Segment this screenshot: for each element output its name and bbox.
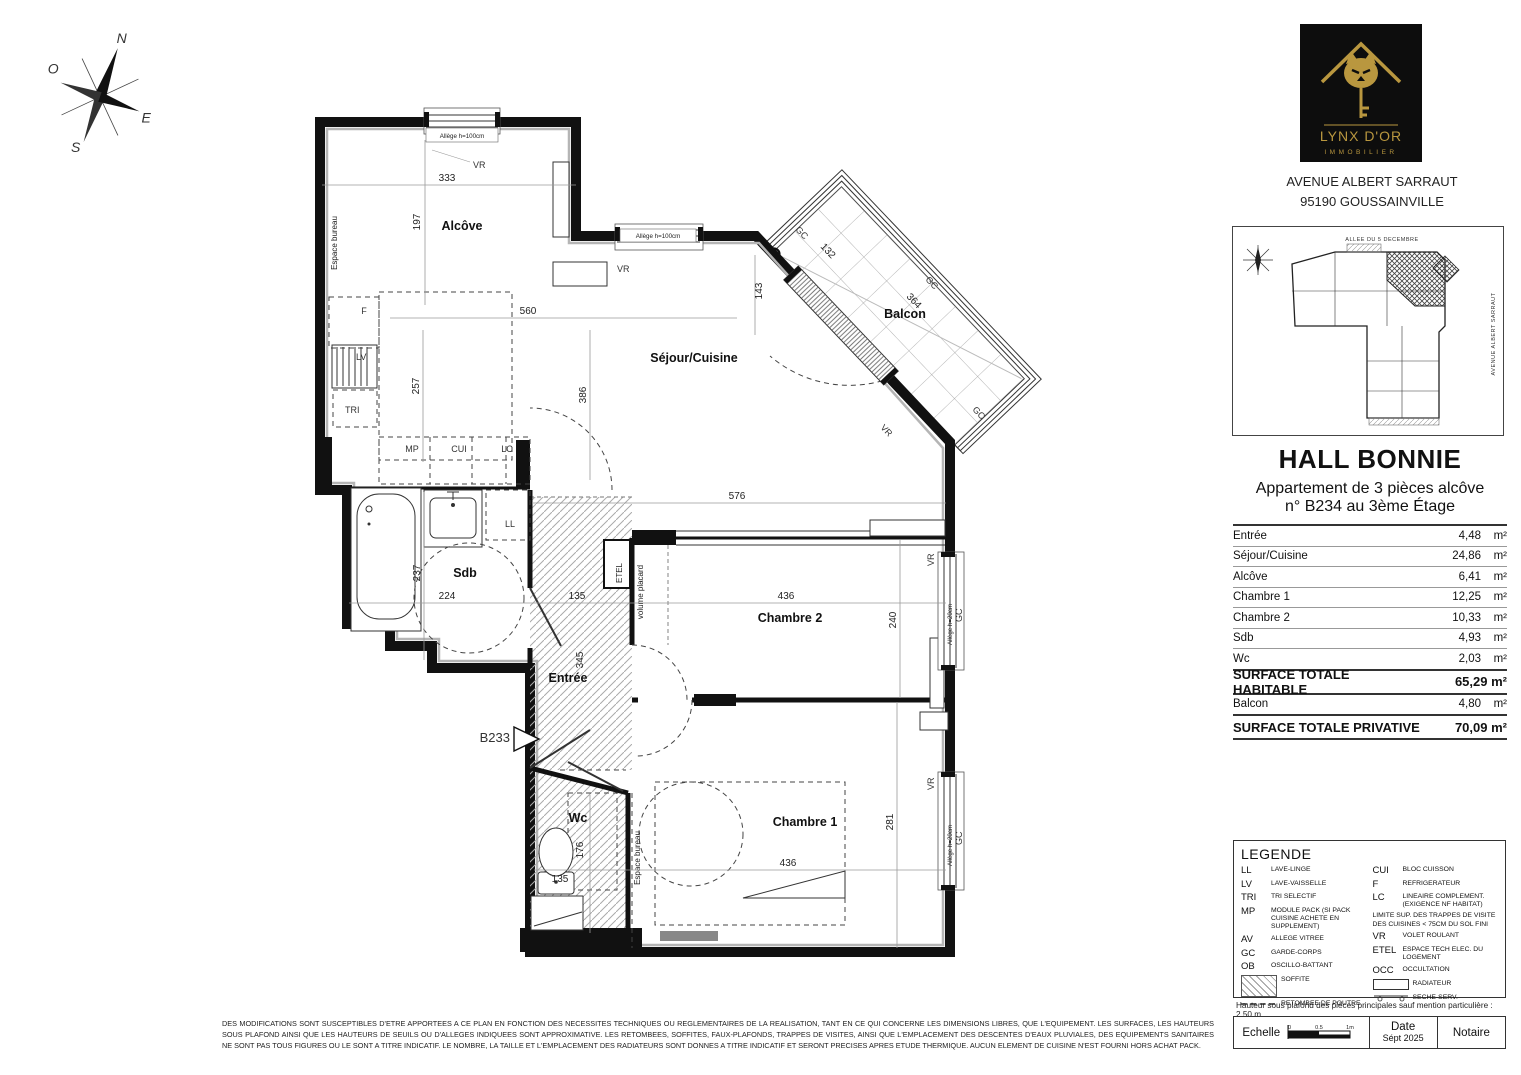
address-line1: AVENUE ALBERT SARRAUT — [1232, 172, 1512, 192]
room-chambre1: Chambre 1 — [773, 815, 838, 829]
page-title: HALL BONNIE — [1230, 444, 1510, 475]
dim-237: 237 — [412, 564, 423, 581]
row-label: Entrée — [1233, 530, 1435, 542]
legend-abbr: VR — [1373, 931, 1403, 942]
row-label: Chambre 2 — [1233, 612, 1435, 624]
legend-abbr: ETEL — [1373, 945, 1403, 963]
legend-text: ALLEGE VITREE — [1271, 934, 1324, 945]
table-row: Sdb 4,93 m² — [1233, 628, 1507, 649]
table-row: Alcôve 6,41 m² — [1233, 566, 1507, 587]
street-top-label: ALLEE DU 5 DECEMBRE — [1345, 237, 1418, 243]
key-icon — [1361, 88, 1369, 118]
row-label: Séjour/Cuisine — [1233, 550, 1435, 562]
vr-label: VR — [473, 160, 486, 170]
legend-abbr: GC — [1241, 948, 1271, 959]
dim-143: 143 — [754, 282, 765, 299]
room-chambre2: Chambre 2 — [758, 611, 823, 625]
dim-576: 576 — [729, 491, 746, 502]
dim-560: 560 — [520, 306, 537, 317]
row-label: SURFACE TOTALE PRIVATIVE — [1233, 720, 1427, 735]
row-unit: m² — [1481, 530, 1507, 542]
balcony-label: Balcon — [884, 307, 926, 321]
date-box: Date Sépt 2025 — [1369, 1016, 1437, 1049]
legend-note: LIMITE SUP. DES TRAPPES DE VISITE DES CU… — [1373, 912, 1499, 929]
dim-436-ch1: 436 — [780, 858, 797, 869]
floor-plan: N S E O Balcon GC 132 GC 364 GC EP — [0, 0, 1230, 1075]
legend-abbr: TRI — [1241, 892, 1271, 903]
title-block: Echelle 0 0.5 1m Date Sépt 2025 Notaire — [1233, 1016, 1506, 1049]
legend-abbr: LC — [1373, 892, 1403, 910]
scale-label: Echelle — [1242, 1027, 1280, 1039]
table-row: Chambre 1 12,25 m² — [1233, 587, 1507, 608]
total-privative-row: SURFACE TOTALE PRIVATIVE 70,09 m² — [1233, 714, 1507, 738]
agency-logo: LYNX D'OR IMMOBILIER — [1300, 24, 1422, 162]
row-label: Wc — [1233, 653, 1435, 665]
allege-label: Allège h=20cm — [947, 825, 954, 866]
address-line2: 95190 GOUSSAINVILLE — [1232, 192, 1512, 212]
date-label: Date — [1391, 1021, 1415, 1034]
allege-label: Allège h=100cm — [440, 133, 485, 140]
lv-label: LV — [356, 352, 366, 362]
row-unit: m² — [1481, 698, 1507, 710]
dim-386: 386 — [578, 386, 589, 403]
table-row: Séjour/Cuisine 24,86 m² — [1233, 546, 1507, 567]
row-value: 10,33 — [1435, 612, 1481, 624]
legend-left-column: LLLAVE-LINGE LVLAVE-VAISSELLE TRITRI SEL… — [1241, 865, 1367, 1011]
allege-label: Allège h=20cm — [947, 604, 954, 645]
legend-text: TRI SELECTIF — [1271, 892, 1316, 903]
plan-header: HALL BONNIE Appartement de 3 pièces alcô… — [1230, 444, 1510, 516]
room-wc: Wc — [569, 811, 588, 825]
surface-table: Entrée 4,48 m² Séjour/Cuisine 24,86 m² A… — [1233, 524, 1507, 740]
etel-label: ETEL — [615, 562, 624, 583]
row-value: 24,86 — [1435, 550, 1481, 562]
row-unit: m² — [1481, 612, 1507, 624]
legend-abbr: OB — [1241, 961, 1271, 972]
compass-e: E — [141, 109, 151, 125]
ll-label: LL — [505, 519, 515, 529]
row-value: 12,25 — [1435, 591, 1481, 603]
row-value: 65,29 m² — [1427, 674, 1507, 689]
room-entree: Entrée — [549, 671, 588, 685]
compass-s: S — [71, 139, 81, 155]
legend-text: LAVE-VAISSELLE — [1271, 879, 1326, 890]
dim-224: 224 — [439, 591, 456, 602]
notaire-label: Notaire — [1453, 1027, 1490, 1039]
espace-bureau-label: Espace bureau — [633, 831, 642, 885]
espace-bureau-label: Espace bureau — [330, 216, 339, 270]
subtitle-line2: n° B234 au 3ème Étage — [1230, 498, 1510, 516]
volume-placard-label: volume placard — [636, 565, 645, 619]
subtitle-line1: Appartement de 3 pièces alcôve — [1230, 480, 1510, 498]
compass-rose: N S E O — [20, 8, 179, 177]
dim-135-wc: 135 — [552, 874, 569, 885]
row-value: 70,09 m² — [1427, 720, 1507, 735]
dim-135-entree: 135 — [569, 591, 586, 602]
date-value: Sépt 2025 — [1383, 1034, 1424, 1044]
radiator-icon — [1373, 979, 1409, 990]
scale-box: Echelle 0 0.5 1m — [1233, 1016, 1369, 1049]
fridge-label: F — [361, 306, 367, 316]
legend-text: OSCILLO-BATTANT — [1271, 961, 1333, 972]
brand-name: LYNX D'OR — [1320, 128, 1402, 144]
gc-label: GC — [954, 608, 964, 622]
row-unit: m² — [1481, 653, 1507, 665]
legend-text: SOFFITE — [1281, 975, 1310, 997]
legend-text: OCCULTATION — [1403, 965, 1450, 976]
lynx-logo-graphic: LYNX D'OR IMMOBILIER — [1300, 24, 1422, 162]
tri-label: TRI — [345, 405, 360, 415]
dim-436-ch2: 436 — [778, 591, 795, 602]
legend-text: LAVE-LINGE — [1271, 865, 1311, 876]
legend-abbr: OCC — [1373, 965, 1403, 976]
vr-label: VR — [926, 553, 936, 566]
legend-text: RADIATEUR — [1413, 979, 1452, 990]
legend-abbr: CUI — [1373, 865, 1403, 876]
dim-176: 176 — [575, 841, 586, 858]
row-value: 6,41 — [1435, 571, 1481, 583]
legend-text: REFRIGERATEUR — [1403, 879, 1461, 890]
dim-257: 257 — [411, 377, 422, 394]
legend-abbr: F — [1373, 879, 1403, 890]
disclaimer-text: DES MODIFICATIONS SONT SUSCEPTIBLES D'ET… — [222, 1019, 1214, 1052]
dim-333: 333 — [439, 173, 456, 184]
notaire-box: Notaire — [1437, 1016, 1506, 1049]
row-value: 4,48 — [1435, 530, 1481, 542]
b233-door-label: B233 — [480, 730, 510, 745]
row-label: Chambre 1 — [1233, 591, 1435, 603]
dim-240: 240 — [888, 611, 899, 628]
table-row: Chambre 2 10,33 m² — [1233, 607, 1507, 628]
row-label: Sdb — [1233, 632, 1435, 644]
legend-text: BLOC CUISSON — [1403, 865, 1454, 876]
legend-text: MODULE PACK (SI PACK CUISINE ACHETE EN S… — [1271, 906, 1367, 932]
table-row: Wc 2,03 m² — [1233, 648, 1507, 669]
dim-345: 345 — [575, 651, 586, 668]
cui-label: CUI — [451, 444, 467, 454]
room-alcove: Alcôve — [442, 219, 483, 233]
vr-label: VR — [617, 264, 630, 274]
lynx-head-icon — [1344, 51, 1378, 88]
row-unit: m² — [1481, 591, 1507, 603]
allege-label: Allège h=100cm — [636, 233, 681, 240]
legend-abbr: LL — [1241, 865, 1271, 876]
table-row: Entrée 4,48 m² — [1233, 526, 1507, 546]
legend-text: VOLET ROULANT — [1403, 931, 1460, 942]
row-label: Balcon — [1233, 698, 1435, 710]
site-key-plan: ALLEE DU 5 DECEMBRE AVENUE ALBERT SARRAU… — [1232, 226, 1504, 436]
legend-abbr: LV — [1241, 879, 1271, 890]
mp-label: MP — [405, 444, 419, 454]
agency-address: AVENUE ALBERT SARRAUT 95190 GOUSSAINVILL… — [1232, 172, 1512, 211]
legend-abbr: MP — [1241, 906, 1271, 932]
total-habitable-row: SURFACE TOTALE HABITABLE 65,29 m² — [1233, 669, 1507, 693]
dim-197: 197 — [412, 213, 423, 230]
legend-text: ESPACE TECH ELEC. DU LOGEMENT — [1403, 945, 1499, 963]
legend-text: LINEAIRE COMPLEMENT. (EXIGENCE NF HABITA… — [1403, 892, 1499, 910]
scale-tick: 0.5 — [1315, 1025, 1323, 1031]
lc-label: LC — [501, 444, 513, 454]
row-unit: m² — [1481, 632, 1507, 644]
row-value: 2,03 — [1435, 653, 1481, 665]
row-label: Alcôve — [1233, 571, 1435, 583]
dim-281: 281 — [885, 813, 896, 830]
soffite-swatch-icon — [1241, 975, 1277, 997]
brand-tagline: IMMOBILIER — [1324, 149, 1397, 156]
mini-compass-icon — [1243, 245, 1273, 275]
scale-tick: 1m — [1346, 1025, 1354, 1031]
room-sdb: Sdb — [453, 566, 477, 580]
room-sejour: Séjour/Cuisine — [650, 351, 738, 365]
legend-right-column: CUIBLOC CUISSON FREFRIGERATEUR LCLINEAIR… — [1373, 865, 1499, 1011]
legend-abbr: AV — [1241, 934, 1271, 945]
legend-title: LEGENDE — [1241, 846, 1498, 862]
compass-o: O — [48, 61, 59, 77]
legend-box: LEGENDE LLLAVE-LINGE LVLAVE-VAISSELLE TR… — [1233, 840, 1506, 998]
street-right-label: AVENUE ALBERT SARRAUT — [1491, 292, 1497, 375]
row-value: 4,93 — [1435, 632, 1481, 644]
row-unit: m² — [1481, 550, 1507, 562]
row-value: 4,80 — [1435, 698, 1481, 710]
legend-text: GARDE-CORPS — [1271, 948, 1322, 959]
row-unit: m² — [1481, 571, 1507, 583]
vr-label: VR — [926, 777, 936, 790]
scale-bar: 0 0.5 1m — [1286, 1023, 1360, 1043]
compass-n: N — [117, 30, 128, 46]
row-label: SURFACE TOTALE HABITABLE — [1233, 667, 1427, 697]
gc-label: GC — [954, 831, 964, 845]
